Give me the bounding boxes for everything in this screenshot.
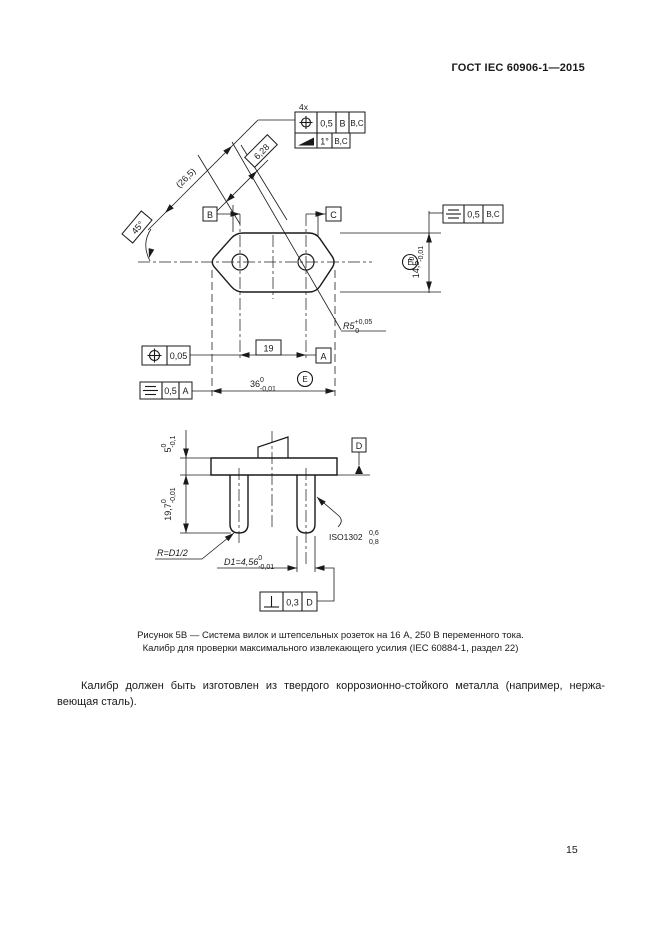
dim-diagonal-boxed: 6,28 (245, 135, 278, 168)
svg-text:0,8: 0,8 (369, 539, 379, 546)
svg-text:B,C: B,C (334, 137, 348, 146)
plate-section-outline (211, 458, 337, 475)
svg-text:0,5: 0,5 (467, 210, 480, 220)
dim-plate-thickness-text: 50-0,1 (161, 435, 177, 452)
wedge-boss-outline (258, 437, 288, 458)
svg-text:A: A (182, 386, 188, 396)
document-page: ГОСТ IEC 60906-1—2015 (0, 0, 661, 936)
svg-text:1°: 1° (320, 137, 329, 147)
dim-angle-45: 45° (122, 211, 152, 243)
body-paragraph-line1: Калибр должен быть изготовлен из твердог… (57, 679, 605, 695)
body-paragraph-line2: веющая сталь). (57, 695, 605, 711)
svg-text:0,05: 0,05 (170, 351, 188, 361)
svg-text:E: E (302, 375, 307, 384)
dim-diagonal-ref: (26,5) (174, 166, 198, 190)
svg-text:0,3: 0,3 (286, 598, 299, 608)
svg-text:A: A (320, 352, 326, 362)
svg-text:0,6: 0,6 (369, 530, 379, 537)
pin-tip-radius-note: R=D1/2 (157, 548, 188, 558)
dim-pin-diameter-text: D1=4,560-0,01 (224, 555, 274, 571)
svg-text:E: E (407, 258, 412, 267)
svg-text:0,5: 0,5 (320, 119, 333, 129)
count-note: 4x (299, 102, 309, 112)
svg-text:B: B (207, 210, 213, 220)
svg-text:D: D (306, 598, 313, 608)
plan-view-annotations: 4x 0,5 B B,C 1° B,C (26,5) (122, 102, 503, 399)
front-view-linework (155, 430, 370, 601)
datum-triangle-icon (355, 465, 363, 474)
figure-caption-line2: Калибр для проверки максимального извлек… (0, 642, 661, 655)
dim-corner-radius-text: R5+0,050 (343, 319, 372, 335)
svg-text:B,C: B,C (486, 210, 500, 219)
page-number: 15 (566, 844, 578, 856)
svg-text:C: C (330, 210, 337, 220)
svg-text:(26,5): (26,5) (174, 166, 198, 190)
figure-caption-line1: Рисунок 5В — Система вилок и штепсельных… (0, 629, 661, 642)
body-paragraph: Калибр должен быть изготовлен из твердог… (57, 679, 605, 710)
svg-text:19: 19 (263, 344, 273, 354)
svg-text:B: B (339, 119, 345, 129)
front-view-annotations: D 50-0,1 19,70-0,01 ISO1302 0,6 0,8 R=D1… (157, 435, 379, 611)
svg-text:D: D (356, 441, 363, 451)
svg-text:0,5: 0,5 (164, 386, 177, 396)
surface-finish-note: ISO1302 (329, 532, 363, 542)
technical-drawing: 4x 0,5 B B,C 1° B,C (26,5) (0, 0, 661, 936)
svg-text:B,C: B,C (350, 119, 364, 128)
dim-pin-length-text: 19,70-0,01 (161, 487, 177, 520)
